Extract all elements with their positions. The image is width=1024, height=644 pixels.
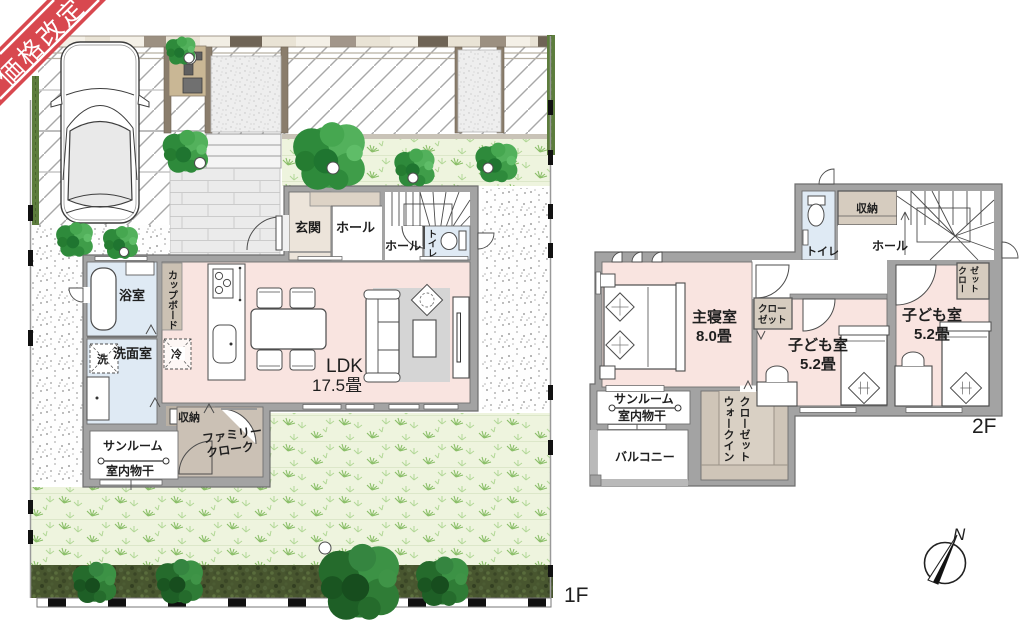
svg-text:室内物干: 室内物干 <box>618 408 666 423</box>
svg-text:クローゼット: クローゼット <box>738 396 751 462</box>
svg-text:ホール: ホール <box>385 239 421 253</box>
svg-text:ホール: ホール <box>872 239 908 253</box>
svg-text:クロー: クロー <box>758 304 787 315</box>
svg-text:ゼット: ゼット <box>969 265 979 293</box>
svg-text:サンルーム: サンルーム <box>103 439 163 453</box>
svg-text:クロー: クロー <box>957 266 967 293</box>
svg-text:カップボード: カップボード <box>166 270 178 330</box>
svg-text:ホール: ホール <box>336 220 375 235</box>
svg-text:N: N <box>953 525 966 544</box>
svg-text:バルコニー: バルコニー <box>615 450 675 464</box>
svg-text:洗: 洗 <box>97 352 108 366</box>
svg-text:冷: 冷 <box>171 347 182 361</box>
svg-text:浴室: 浴室 <box>119 288 145 303</box>
svg-text:LDK: LDK <box>326 356 363 377</box>
svg-text:玄関: 玄関 <box>295 220 321 235</box>
svg-text:主寝室: 主寝室 <box>692 308 737 326</box>
svg-text:サンルーム: サンルーム <box>614 392 674 406</box>
svg-text:2F: 2F <box>972 415 997 438</box>
svg-text:収納: 収納 <box>856 201 878 215</box>
svg-text:ウォークイン: ウォークイン <box>722 396 735 462</box>
svg-text:1F: 1F <box>564 584 589 607</box>
svg-text:トイレ: トイレ <box>806 245 839 258</box>
svg-text:17.5畳: 17.5畳 <box>312 376 362 395</box>
svg-text:5.2畳: 5.2畳 <box>800 356 836 373</box>
svg-text:収納: 収納 <box>178 410 200 424</box>
svg-text:室内物干: 室内物干 <box>106 463 154 478</box>
svg-text:8.0畳: 8.0畳 <box>696 328 732 345</box>
svg-text:トイレ: トイレ <box>426 229 438 258</box>
svg-text:洗面室: 洗面室 <box>113 346 152 361</box>
svg-text:子ども室: 子ども室 <box>788 336 848 354</box>
svg-text:5.2畳: 5.2畳 <box>914 326 950 343</box>
svg-text:子ども室: 子ども室 <box>902 306 962 324</box>
svg-text:ゼット: ゼット <box>758 314 787 326</box>
